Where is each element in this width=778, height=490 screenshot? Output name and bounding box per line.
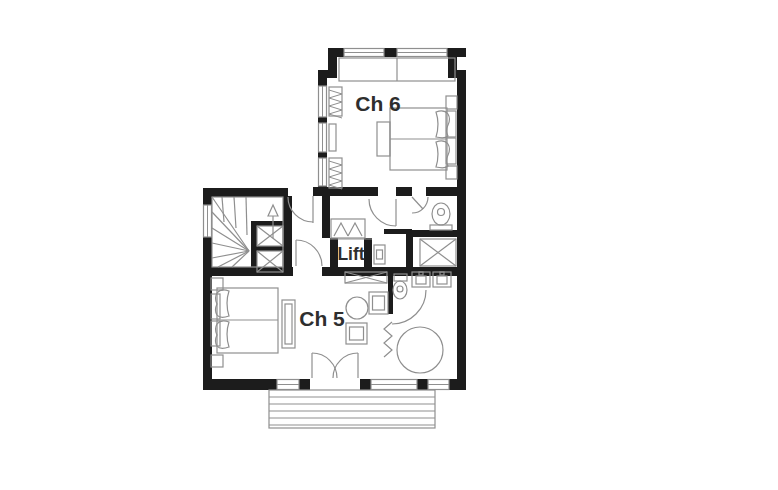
window: [277, 380, 299, 390]
window-sill: [329, 124, 336, 151]
door-ch5: [296, 240, 322, 266]
terrace-steps: [269, 390, 435, 428]
dresser-icon: [282, 300, 295, 348]
window: [397, 49, 447, 57]
staircase-icon: [212, 197, 283, 267]
bed-ch5-icon: [211, 278, 278, 367]
door-wc: [412, 197, 428, 213]
round-bathtub-icon: [397, 327, 443, 373]
french-door: [312, 353, 358, 378]
window: [371, 380, 417, 390]
toilet-icon: [393, 274, 407, 299]
lift-label: Lift: [337, 244, 364, 264]
window: [319, 86, 327, 117]
closet-icon: [331, 219, 365, 238]
towel-radiator-icon: [384, 322, 392, 357]
room-label-ch5: Ch 5: [299, 307, 345, 330]
window-seat-icon: [339, 58, 455, 81]
shower-icon: [420, 239, 456, 266]
window: [428, 380, 449, 390]
window: [319, 123, 327, 152]
toilet-icon: [430, 203, 452, 230]
floor-plan: Lift: [0, 0, 778, 490]
radiator-icon: [329, 87, 342, 118]
door-ch6: [369, 199, 396, 226]
floor-plan-drawing: Lift: [0, 0, 778, 490]
table-and-chairs-icon: [346, 292, 388, 344]
window: [204, 205, 212, 237]
washbasin-icon: [374, 245, 385, 264]
window: [319, 158, 327, 186]
room-label-ch6: Ch 6: [355, 92, 401, 115]
radiator-icon: [329, 158, 342, 189]
door-bathroom-ch5: [392, 290, 426, 324]
window: [344, 49, 384, 57]
